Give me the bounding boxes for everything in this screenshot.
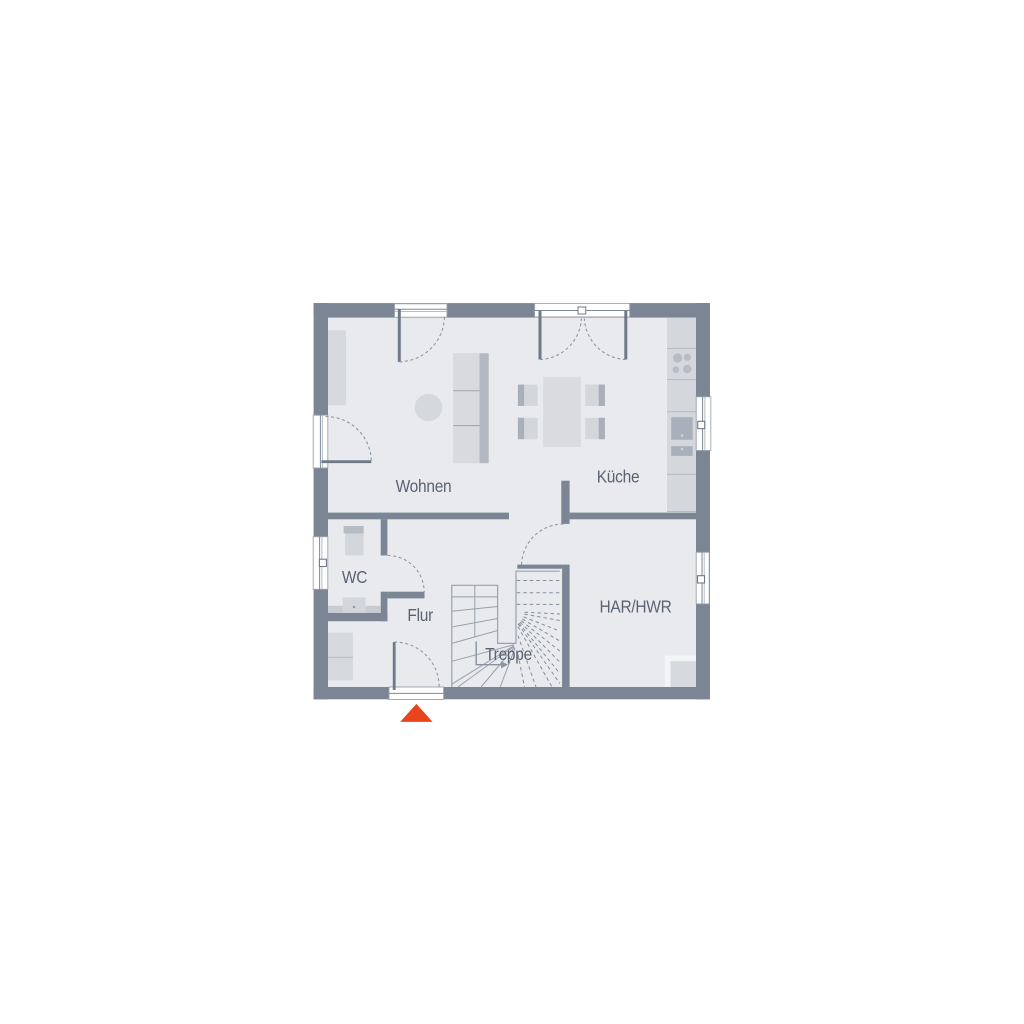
svg-text:Wohnen: Wohnen [396,476,452,496]
svg-text:HAR/HWR: HAR/HWR [599,596,671,616]
svg-text:Küche: Küche [597,466,640,486]
svg-text:WC: WC [342,567,367,587]
svg-text:Flur: Flur [407,605,433,625]
svg-text:Treppe: Treppe [485,644,532,664]
